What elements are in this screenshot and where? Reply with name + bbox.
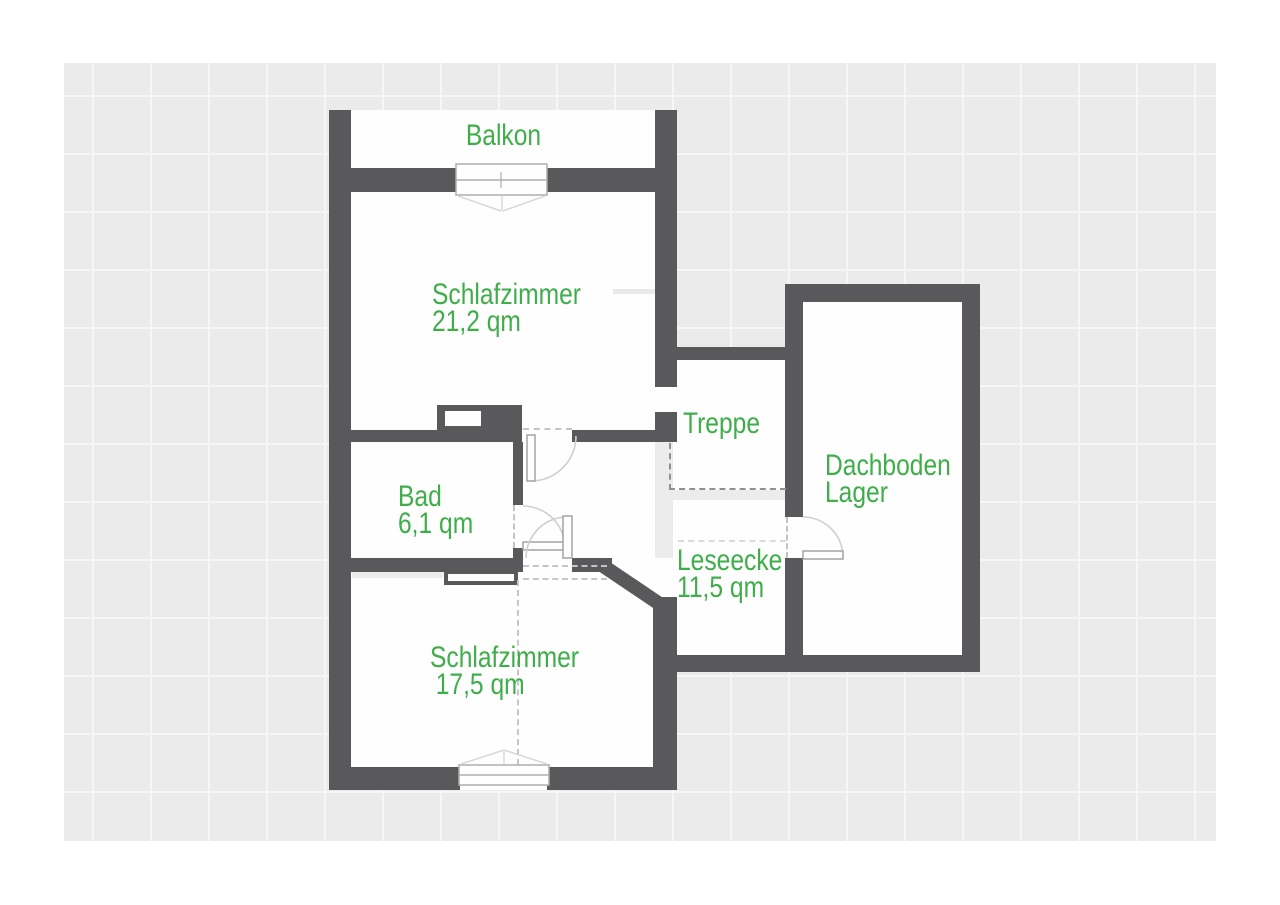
- door-swing-icon: [526, 516, 572, 558]
- room-name: Bad: [398, 483, 473, 510]
- door-window-symbols: [0, 0, 1280, 905]
- room-label-bad: Bad 6,1 qm: [398, 483, 473, 537]
- room-label-schlafzimmer-top: Schlafzimmer 21,2 qm: [432, 281, 581, 335]
- floorplan-canvas: Balkon Schlafzimmer 21,2 qm Treppe Dachb…: [0, 0, 1280, 905]
- room-label-balkon: Balkon: [379, 122, 627, 149]
- room-label-schlafzimmer-bottom: Schlafzimmer 17,5 qm: [430, 644, 579, 698]
- room-name: Dachboden: [825, 452, 951, 479]
- window-icon: [459, 750, 549, 785]
- door-swing-icon: [527, 435, 576, 481]
- room-name: Balkon: [379, 122, 627, 149]
- room-name: Treppe: [683, 410, 760, 437]
- room-label-treppe: Treppe: [683, 410, 760, 437]
- room-area: 6,1 qm: [398, 510, 473, 537]
- window-icon: [456, 164, 547, 211]
- room-area: 21,2 qm: [432, 308, 581, 335]
- room-name: Leseecke: [677, 547, 782, 574]
- room-label-leseecke: Leseecke 11,5 qm: [677, 547, 782, 601]
- room-label-dachboden: Dachboden Lager: [825, 452, 951, 506]
- room-name-line2: Lager: [825, 479, 951, 506]
- room-name: Schlafzimmer: [432, 281, 581, 308]
- door-swing-icon: [803, 517, 843, 559]
- room-area: 11,5 qm: [677, 574, 782, 601]
- room-name: Schlafzimmer: [430, 644, 579, 671]
- room-area: 17,5 qm: [436, 671, 579, 698]
